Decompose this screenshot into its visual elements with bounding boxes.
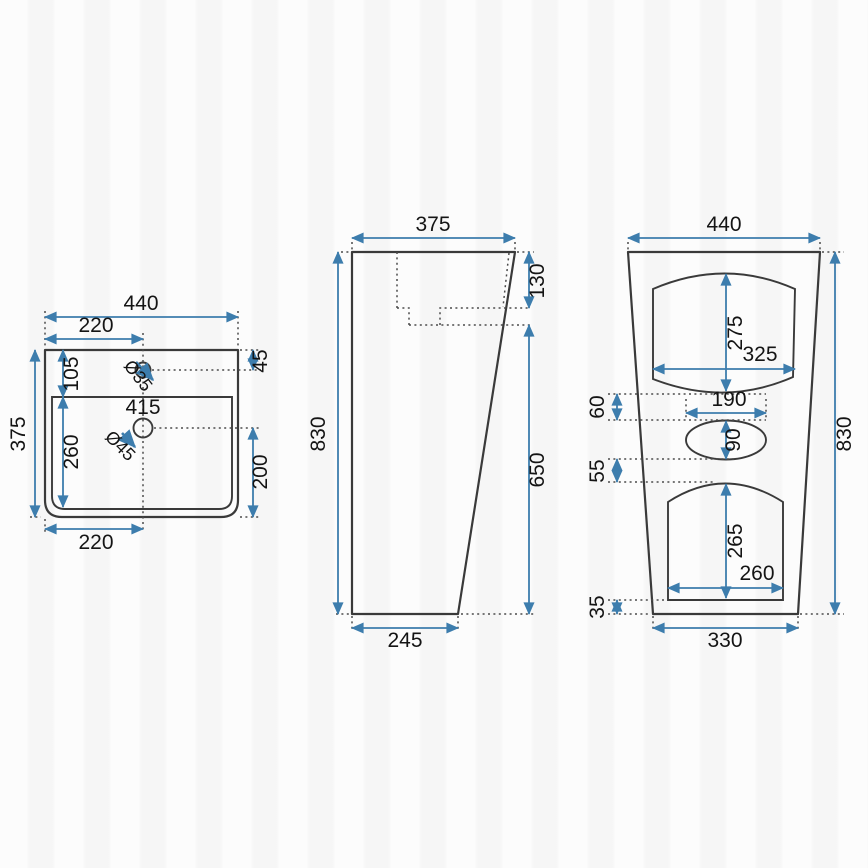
dim-front-overall-width: 440	[706, 213, 741, 236]
top-view-dimension-lines	[35, 317, 253, 529]
dim-top-drain-position: 415	[125, 396, 160, 419]
side-view-hidden-basin-lines	[397, 252, 531, 325]
dim-front-base-width: 330	[707, 629, 742, 652]
dim-side-pedestal-height: 650	[526, 452, 549, 487]
dim-top-faucet-offset: 45	[249, 349, 272, 372]
dim-top-rim-to-basin: 105	[60, 356, 83, 391]
top-view-extension-lines	[30, 311, 261, 533]
dim-front-oval-height: 90	[722, 428, 745, 451]
dim-front-total-height: 830	[833, 416, 856, 451]
dim-front-gap-upper: 60	[586, 395, 609, 418]
dim-top-center-offset-bottom: 220	[78, 531, 113, 554]
top-view: 440 220 375 105 260 45 200 220 415 Ø35 Ø…	[7, 292, 272, 554]
dim-top-basin-inner-depth: 260	[60, 434, 83, 469]
technical-drawing-canvas: 440 220 375 105 260 45 200 220 415 Ø35 Ø…	[0, 0, 868, 868]
front-view: 440 830 275 325 190 90 60 55 35 265 260 …	[586, 213, 856, 652]
dim-side-basin-height: 130	[526, 263, 549, 298]
dim-top-center-offset-top: 220	[78, 314, 113, 337]
dim-front-upper-recess-width: 325	[742, 343, 777, 366]
side-view-dimension-lines	[338, 238, 529, 628]
dim-front-gap-lower: 35	[586, 595, 609, 618]
dim-front-gap-middle: 55	[586, 459, 609, 482]
dim-top-overall-width: 440	[123, 292, 158, 315]
dim-top-faucet-hole-diameter: Ø35	[120, 356, 157, 395]
dim-front-oval-width: 190	[711, 388, 746, 411]
side-view-extension-lines	[336, 242, 534, 632]
dim-front-lower-recess-height: 265	[724, 523, 747, 558]
dim-side-top-depth: 375	[415, 213, 450, 236]
dim-top-overall-depth: 375	[7, 416, 30, 451]
dim-top-drain-to-front: 200	[249, 454, 272, 489]
dim-front-lower-recess-width: 260	[739, 562, 774, 585]
side-view: 375 830 130 650 245	[307, 213, 549, 652]
side-view-body-outline	[352, 252, 515, 614]
dim-side-base-depth: 245	[387, 629, 422, 652]
washbasin-drawing: 440 220 375 105 260 45 200 220 415 Ø35 Ø…	[0, 0, 868, 868]
dim-side-total-height: 830	[307, 416, 330, 451]
